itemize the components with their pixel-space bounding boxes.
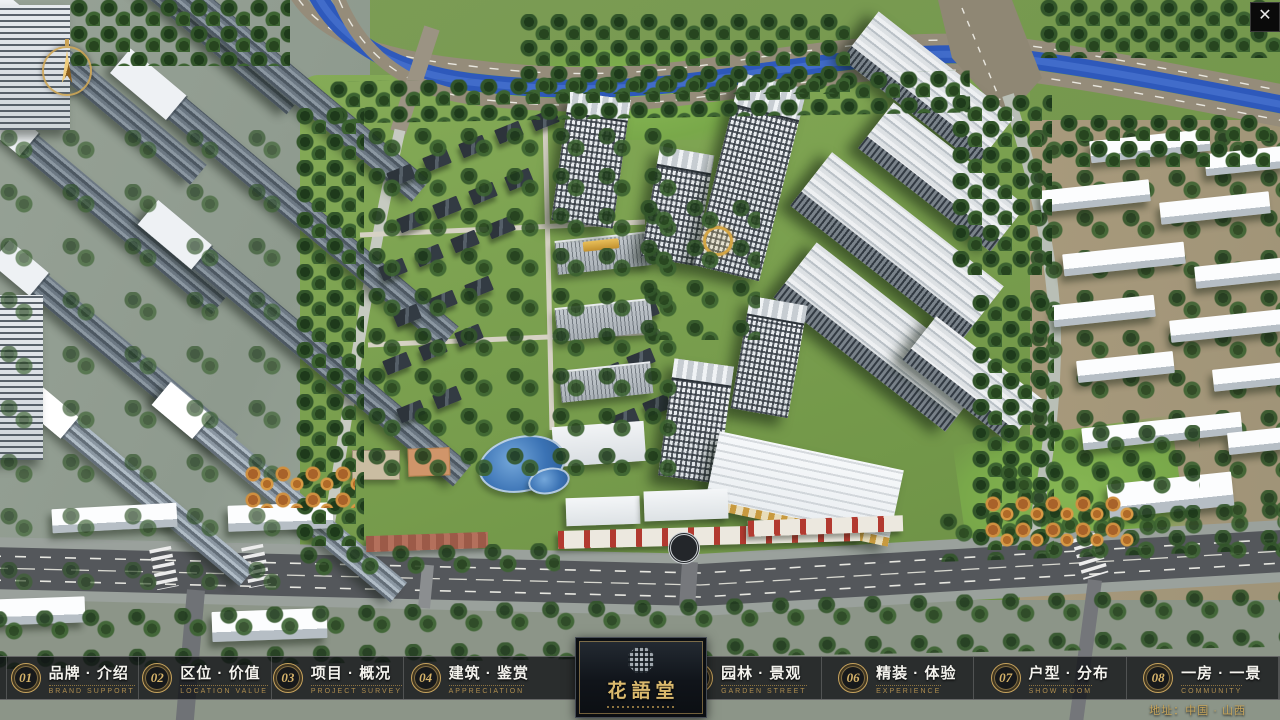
retail-canopy — [566, 496, 641, 527]
nav-badge: 01 — [11, 663, 41, 693]
nav-badge: 03 — [273, 663, 303, 693]
nav-item-views[interactable]: 08 一房 · 一景 COMMUNITY — [1126, 657, 1279, 699]
nav-caption: GARDEN STREET — [721, 685, 807, 695]
nav-badge: 06 — [838, 663, 868, 693]
entrance-plaza — [668, 532, 700, 564]
logo-seal-icon — [628, 647, 654, 673]
tree-scatter — [640, 200, 760, 340]
nav-badge: 07 — [991, 663, 1021, 693]
nav-caption: COMMUNITY — [1181, 685, 1242, 695]
autumn-tree-row — [985, 496, 1135, 548]
nav-item-location[interactable]: 02 区位 · 价值 LOCATION VALUE — [138, 657, 270, 699]
nav-caption: EXPERIENCE — [876, 685, 941, 695]
nav-item-project[interactable]: 03 项目 · 概况 PROJECT SURVEY — [271, 657, 403, 699]
tree-row-boulevard — [300, 543, 561, 586]
tree-cluster — [520, 14, 850, 94]
nav-badge: 02 — [142, 663, 172, 693]
tree-scatter — [368, 128, 683, 476]
nav-label: 一房 · 一景 — [1181, 662, 1261, 683]
compass-icon — [42, 46, 92, 96]
nav-group-right: 05 园林 · 景观 GARDEN STREET 06 精装 · 体验 EXPE… — [668, 657, 1279, 699]
nav-text: 区位 · 价值 LOCATION VALUE — [180, 662, 268, 695]
logo-title: 花語堂 — [602, 676, 679, 703]
close-icon[interactable]: ✕ — [1250, 2, 1280, 32]
tree-cluster — [1060, 115, 1270, 167]
nav-text: 精装 · 体验 EXPERIENCE — [876, 662, 956, 695]
nav-item-floorplan[interactable]: 07 户型 · 分布 SHOW ROOM — [973, 657, 1125, 699]
nav-text: 一房 · 一景 COMMUNITY — [1181, 662, 1261, 695]
nav-text: 户型 · 分布 SHOW ROOM — [1029, 662, 1109, 695]
nav-group-left: 01 品牌 · 介绍 BRAND SUPPORT 02 区位 · 价值 LOCA… — [0, 657, 535, 699]
nav-text: 园林 · 景观 GARDEN STREET — [721, 662, 807, 695]
nav-caption: PROJECT SURVEY — [311, 685, 402, 695]
logo-caption-line — [607, 706, 675, 708]
nav-label: 建筑 · 鉴赏 — [449, 662, 529, 683]
presentation-window: ✕ 01 品牌 · 介绍 BRAND SUPPORT 02 区位 · 价值 LO… — [0, 0, 1280, 720]
nav-label: 区位 · 价值 — [180, 662, 260, 683]
nav-text: 项目 · 概况 PROJECT SURVEY — [311, 662, 402, 695]
compass-north-tick — [65, 39, 69, 46]
nav-badge: 04 — [411, 663, 441, 693]
tree-cluster — [70, 0, 290, 66]
nav-label: 园林 · 景观 — [721, 662, 801, 683]
masterplan-render[interactable] — [0, 0, 1280, 720]
nav-text: 品牌 · 介绍 BRAND SUPPORT — [49, 662, 135, 695]
nav-caption: LOCATION VALUE — [180, 685, 268, 695]
tree-scatter — [0, 130, 300, 590]
nav-caption: BRAND SUPPORT — [49, 685, 135, 695]
project-address: 地址：中国 · 山西 — [1149, 702, 1246, 718]
tree-buffer — [952, 95, 1052, 275]
nav-caption: SHOW ROOM — [1029, 685, 1093, 695]
nav-label: 项目 · 概况 — [311, 662, 391, 683]
nav-item-interior[interactable]: 06 精装 · 体验 EXPERIENCE — [821, 657, 973, 699]
nav-caption: APPRECIATION — [449, 685, 525, 695]
nav-item-architecture[interactable]: 04 建筑 · 鉴赏 APPRECIATION — [403, 657, 535, 699]
project-logo-panel[interactable]: 花語堂 — [575, 637, 707, 718]
nav-item-brand[interactable]: 01 品牌 · 介绍 BRAND SUPPORT — [6, 657, 138, 699]
nav-label: 品牌 · 介绍 — [49, 662, 129, 683]
retail-canopy — [644, 489, 729, 522]
autumn-tree-row — [245, 466, 355, 508]
nav-text: 建筑 · 鉴赏 APPRECIATION — [449, 662, 529, 695]
nav-label: 精装 · 体验 — [876, 662, 956, 683]
compass-needle-icon — [54, 50, 80, 90]
nav-label: 户型 · 分布 — [1029, 662, 1109, 683]
nav-badge: 08 — [1143, 663, 1173, 693]
tree-cluster — [1040, 0, 1280, 58]
